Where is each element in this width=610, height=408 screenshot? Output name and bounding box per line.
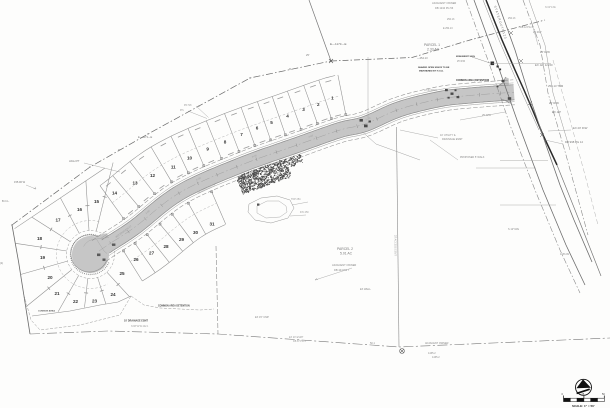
svg-text:8: 8: [224, 139, 227, 144]
svg-text:254.13: 254.13: [508, 17, 516, 20]
svg-text:TOP 254: TOP 254: [291, 198, 301, 201]
svg-text:25': 25': [306, 53, 310, 57]
svg-text:155.96 W: 155.96 W: [14, 180, 26, 184]
svg-text:25' R/W: 25' R/W: [482, 114, 491, 117]
svg-text:23: 23: [92, 298, 98, 303]
svg-text:22: 22: [73, 299, 79, 304]
svg-text:1: 1: [331, 95, 334, 100]
svg-text:S 12°34'E: S 12°34'E: [508, 228, 519, 231]
svg-text:10: 10: [187, 155, 193, 160]
svg-text:25: 25: [119, 271, 125, 276]
svg-text:(1): (1): [0, 261, 3, 265]
svg-text:EX 20' ESMT: EX 20' ESMT: [289, 336, 304, 339]
svg-text:27: 27: [149, 250, 155, 255]
svg-text:3: 3: [302, 107, 305, 112]
svg-text:31: 31: [209, 221, 215, 226]
svg-text:SHARED OPEN SPACE TO BE: SHARED OPEN SPACE TO BE: [418, 66, 450, 69]
svg-text:IPF 5/8: IPF 5/8: [184, 105, 192, 107]
svg-text:25' R/W: 25' R/W: [549, 101, 559, 105]
svg-text:INV 250: INV 250: [300, 211, 309, 214]
svg-text:26: 26: [133, 257, 139, 262]
svg-text:15: 15: [94, 199, 100, 204]
svg-text:EX 20' R/W: EX 20' R/W: [573, 126, 588, 130]
svg-text:—254.13: —254.13: [417, 56, 428, 60]
svg-text:4: 4: [286, 113, 289, 118]
svg-text:DB 1234 PG 56: DB 1234 PG 56: [435, 6, 454, 10]
svg-text:DB 998 PG 12: DB 998 PG 12: [565, 140, 583, 144]
svg-text:25' R/W: 25' R/W: [540, 50, 550, 54]
svg-text:N 88°12'W 242.1: N 88°12'W 242.1: [131, 326, 149, 328]
svg-text:254.13: 254.13: [447, 18, 455, 21]
svg-text:MAINTAINED BY H.O.A.: MAINTAINED BY H.O.A.: [419, 70, 444, 73]
svg-text:13: 13: [132, 181, 138, 186]
svg-text:SCALE: 1" = 50': SCALE: 1" = 50': [572, 404, 595, 408]
svg-text:DB 12 PG 3: DB 12 PG 3: [520, 26, 533, 29]
svg-text:E—1173—E: E—1173—E: [138, 135, 152, 139]
svg-text:N 02°14'E: N 02°14'E: [545, 6, 556, 9]
svg-text:50.1: 50.1: [370, 342, 375, 345]
svg-text:COMMON AREA: COMMON AREA: [38, 310, 55, 313]
svg-text:ADJACENT OWNER: ADJACENT OWNER: [332, 263, 356, 267]
svg-text:14: 14: [112, 190, 118, 195]
svg-text:29: 29: [179, 237, 185, 242]
svg-text:ADJACENT OWNER: ADJACENT OWNER: [425, 342, 449, 345]
svg-text:EX. EP: EX. EP: [552, 110, 561, 114]
svg-text:6: 6: [256, 125, 259, 130]
svg-text:COMMON AREA DETENTION: COMMON AREA DETENTION: [158, 305, 190, 308]
svg-text:IPS: IPS: [180, 110, 184, 112]
svg-text:7: 7: [240, 132, 243, 137]
svg-text:11: 11: [171, 165, 176, 170]
svg-text:5.01 AC: 5.01 AC: [340, 252, 353, 256]
svg-text:12: 12: [150, 173, 156, 178]
svg-text:30: 30: [193, 230, 199, 235]
svg-text:254.13 TBM: 254.13 TBM: [548, 84, 564, 88]
svg-text:10' UTILITY &: 10' UTILITY &: [440, 134, 456, 137]
svg-text:20: 20: [47, 275, 53, 280]
svg-text:28: 28: [163, 244, 169, 249]
svg-text:DB 87 PG 3: DB 87 PG 3: [293, 340, 306, 343]
svg-text:E—1173—E: E—1173—E: [330, 42, 346, 46]
svg-text:B.O.L.: B.O.L.: [2, 199, 10, 203]
svg-text:9: 9: [206, 147, 209, 152]
svg-text:5: 5: [270, 120, 273, 125]
svg-text:HIGH PT: HIGH PT: [69, 159, 80, 163]
svg-text:1435.2: 1435.2: [432, 356, 440, 359]
svg-text:25' R/W: 25' R/W: [457, 61, 466, 63]
svg-text:EX. EP 12+50: EX. EP 12+50: [535, 63, 553, 67]
svg-text:2: 2: [317, 102, 320, 107]
svg-text:19: 19: [40, 255, 46, 260]
svg-text:E 254.13: E 254.13: [443, 27, 453, 30]
svg-text:18: 18: [37, 236, 43, 241]
svg-text:25' R/W: 25' R/W: [533, 31, 542, 34]
svg-text:17: 17: [55, 217, 61, 222]
svg-text:ADJACENT OWNER: ADJACENT OWNER: [432, 1, 456, 5]
svg-text:PARCEL 1: PARCEL 1: [424, 43, 440, 47]
svg-text:EX WELL: EX WELL: [360, 288, 371, 291]
svg-text:PROPOSED 5' WALK: PROPOSED 5' WALK: [460, 156, 485, 159]
svg-text:2.33 AC: 2.33 AC: [427, 48, 440, 52]
svg-text:16: 16: [77, 207, 83, 212]
svg-text:10' DRAINAGE ESMT: 10' DRAINAGE ESMT: [124, 320, 148, 323]
svg-text:20' ACCESS ESMT: 20' ACCESS ESMT: [394, 235, 397, 256]
svg-text:DRAINAGE ESMT: DRAINAGE ESMT: [442, 138, 463, 141]
svg-text:COMMON AREA (DETENTION): COMMON AREA (DETENTION): [456, 79, 489, 82]
svg-text:10' BUFFER: 10' BUFFER: [424, 90, 437, 92]
svg-text:PARCEL 2: PARCEL 2: [337, 247, 353, 251]
svg-text:24: 24: [110, 292, 116, 297]
svg-text:1435.2: 1435.2: [428, 352, 436, 355]
svg-text:EX 15" CMP: EX 15" CMP: [255, 316, 269, 319]
svg-text:1183.09: 1183.09: [560, 253, 569, 256]
svg-text:21: 21: [54, 291, 60, 296]
